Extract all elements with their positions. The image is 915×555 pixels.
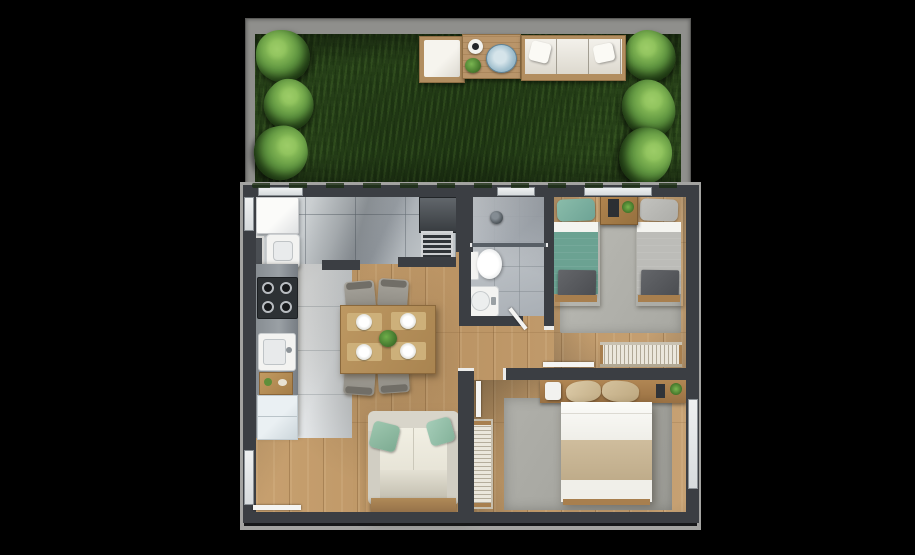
shower-screen (470, 243, 548, 247)
cutting-board (259, 372, 293, 395)
bed-pillow (640, 198, 679, 221)
placemat (347, 343, 382, 361)
wall-end-cap (458, 368, 474, 371)
bed-pillow (557, 198, 596, 221)
bed-sheet (561, 402, 652, 440)
bed-throw-blanket (561, 440, 652, 480)
master-bed-headboard (540, 379, 686, 403)
bed-sheet-fold (554, 222, 598, 232)
bedside-lamp (545, 382, 561, 400)
garden-bush (256, 30, 310, 82)
master-bedroom-door-leaf (476, 381, 481, 417)
bed-foot-frame (555, 295, 597, 302)
wall-master-north (503, 368, 699, 380)
wall-bathroom-south (459, 316, 523, 326)
table-centerpiece-plant (379, 330, 397, 347)
placemat (391, 312, 426, 330)
twin-bedroom-wardrobe (600, 342, 682, 367)
cooktop (257, 277, 298, 319)
kitchen-base-cabinet (257, 395, 298, 440)
burner (262, 282, 274, 294)
window (497, 187, 535, 196)
wall-master-west (458, 368, 474, 512)
burner (280, 301, 292, 313)
patio-coffee-table (462, 34, 521, 79)
placemat (391, 342, 426, 360)
plate (400, 343, 416, 359)
foot-blanket (641, 270, 679, 297)
bed-pillow (601, 379, 640, 403)
single-bed-teal (553, 194, 600, 306)
tablet (608, 199, 619, 217)
single-bed-gray (636, 194, 683, 306)
patio-lounge-chair (419, 36, 465, 83)
nightstand-item (656, 384, 665, 398)
burner (262, 301, 274, 313)
sofa-front-edge (380, 470, 447, 498)
twin-bedroom-nightstand (600, 193, 638, 225)
bed-foot-frame (563, 499, 650, 505)
plate (356, 314, 372, 330)
bed-foot-frame (638, 295, 680, 302)
nightstand-plant (622, 201, 634, 213)
patio-chair-cushion (424, 40, 460, 77)
plate (356, 344, 372, 360)
wall-bathroom-west (459, 252, 471, 326)
nightstand-plant (670, 383, 682, 395)
window (688, 399, 698, 489)
foot-blanket (558, 270, 596, 297)
patio-blue-platter (486, 44, 517, 73)
wall-service-stub (398, 257, 456, 267)
window (258, 187, 303, 196)
bed-pillow (565, 379, 602, 404)
patio-outdoor-sofa (521, 35, 626, 81)
shower-area (470, 197, 545, 245)
wall-bathroom-east (544, 197, 554, 330)
laundry-tank-sink (266, 234, 300, 268)
wall-kitchen-stub (322, 260, 360, 270)
shower-drain (490, 211, 503, 224)
window (584, 187, 652, 196)
placemat (347, 313, 382, 331)
patio-potted-plant (465, 58, 481, 73)
bed-sheet-fold (637, 222, 681, 232)
wall-end-cap (544, 326, 554, 330)
window (244, 450, 254, 505)
plate (400, 313, 416, 329)
floor-plan-render (0, 0, 915, 555)
entrance-door-leaf (253, 505, 301, 510)
refrigerator (419, 197, 459, 233)
kitchen-sink (258, 333, 296, 371)
dining-table (340, 305, 436, 374)
sofa-wood-base (371, 498, 456, 512)
washing-machine (256, 197, 299, 234)
window (244, 197, 254, 231)
patio-cup (468, 39, 483, 54)
toilet-bowl (477, 249, 502, 279)
foliage-overhang (252, 183, 688, 188)
double-bed (561, 402, 652, 502)
wall-south (243, 512, 699, 523)
wall-end-cap (503, 368, 506, 380)
burner (280, 282, 292, 294)
twin-bedroom-door-leaf (543, 362, 594, 367)
